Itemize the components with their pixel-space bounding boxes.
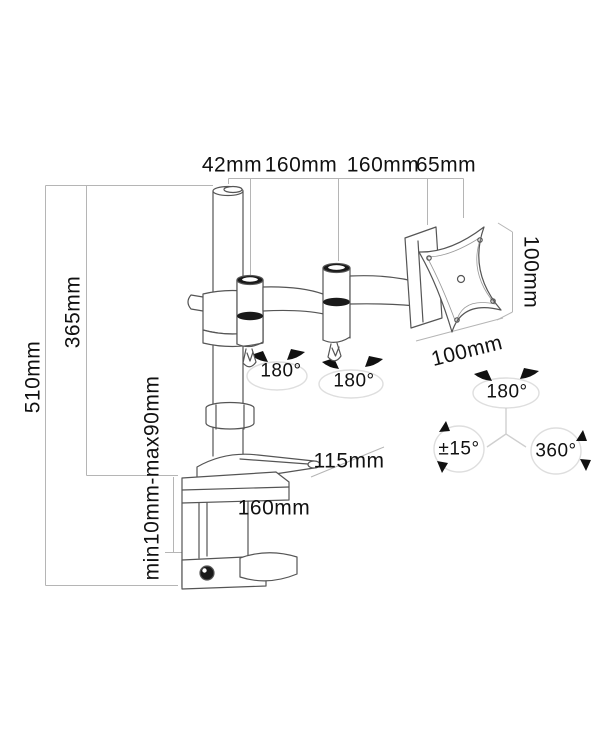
arm-1 xyxy=(263,287,324,314)
dim-label-vesa-height: 100mm xyxy=(521,236,542,309)
dim-label-head-depth: 65mm xyxy=(416,155,476,176)
dim-label-arm2-length: 160mm xyxy=(347,155,420,176)
arc-connector xyxy=(487,408,526,447)
diagram-canvas: 42mm 160mm 160mm 65mm 510mm 365mm min10m… xyxy=(0,0,600,744)
rotation-label-arm1: 180° xyxy=(260,362,301,381)
arrow-icon xyxy=(474,370,492,381)
dim-label-lever-length: 115mm xyxy=(314,451,385,472)
dimension-lines xyxy=(46,179,513,586)
arrow-icon xyxy=(520,368,539,379)
rotation-label-arm2: 180° xyxy=(333,372,374,391)
arrow-icon xyxy=(439,421,450,432)
rotation-label-360: 360° xyxy=(535,442,576,461)
dim-label-base-depth: 160mm xyxy=(238,498,311,519)
rotation-label-tilt: ±15° xyxy=(438,440,479,459)
dim-label-clamp-range: min10mm-max90mm xyxy=(142,376,163,581)
dim-label-pole-offset: 42mm xyxy=(202,155,262,176)
arrow-icon xyxy=(365,356,383,367)
dim-label-arm1-length: 160mm xyxy=(265,155,338,176)
arrow-icon xyxy=(437,461,448,473)
dim-label-pole-height: 365mm xyxy=(63,276,84,349)
arrow-icon xyxy=(287,349,305,360)
dim-label-total-height: 510mm xyxy=(23,341,44,414)
arm-joint-2 xyxy=(323,264,350,361)
desk-clamp xyxy=(182,454,320,589)
arrow-icon xyxy=(580,459,591,471)
arrow-icon xyxy=(576,430,587,441)
rotation-label-swivel: 180° xyxy=(486,383,527,402)
vesa-plate xyxy=(405,227,501,332)
